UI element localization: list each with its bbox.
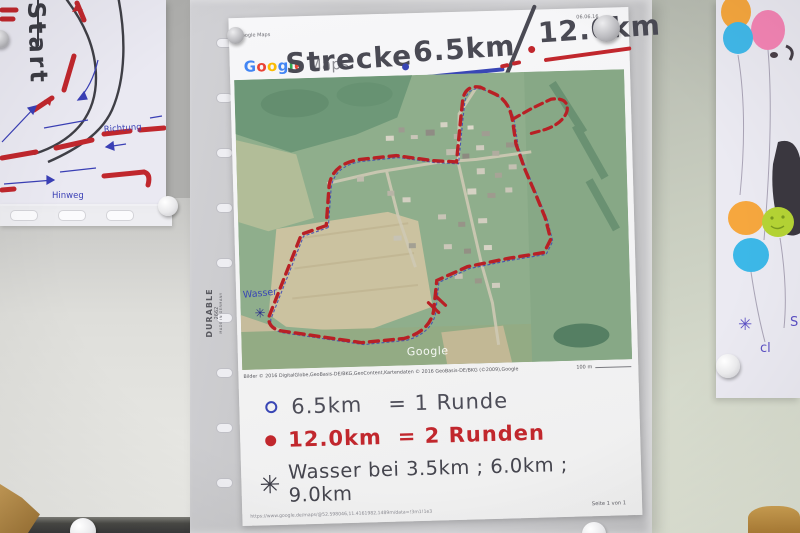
right-star-mark: ✳	[738, 315, 752, 335]
hinweg-label: Hinweg	[52, 191, 84, 201]
title-strecke: Strecke	[284, 39, 413, 80]
water-star-icon: ✳	[259, 469, 281, 499]
legend-dist-2: 12.0km	[288, 425, 382, 452]
left-sheet-protector-holes	[0, 204, 172, 226]
right-drawing-sheet: ✳ S cl	[716, 0, 800, 398]
blue-bullet-icon	[265, 401, 277, 413]
orange-balloon-mid	[728, 201, 764, 235]
map-attribution: Bilder © 2016 DigitalGlobe,GeoBasis-DE/B…	[243, 367, 518, 380]
push-pin	[227, 27, 244, 44]
legend-eq-1: = 1 Runde	[388, 389, 508, 416]
legend-row-2: 12.0km = 2 Runden	[262, 418, 623, 452]
route-legend: 6.5km = 1 Runde 12.0km = 2 Runden ✳ Wass…	[261, 385, 624, 516]
footer-page-number: Seite 1 von 1	[592, 500, 626, 507]
red-bullet-icon	[265, 435, 276, 446]
board-surface-left	[0, 198, 202, 533]
red-dot-icon	[528, 46, 535, 53]
left-drawing-sketch: Start	[0, 0, 166, 206]
wood-corner-right	[748, 506, 800, 533]
sheet-protector: DURABLE 2662 MADE IN GERMANY Google Maps…	[190, 0, 652, 533]
richtung-label: Richtung	[104, 122, 142, 135]
push-pin	[158, 196, 178, 216]
sleeve-brand-label: DURABLE 2662 MADE IN GERMANY	[206, 280, 224, 346]
title-distance-1: 6.5km	[412, 29, 516, 69]
dark-mark	[770, 52, 778, 58]
legend-row-1: 6.5km = 1 Runde	[261, 385, 622, 419]
blue-balloon-top	[723, 22, 753, 54]
pink-balloon	[751, 10, 785, 50]
sleeve-origin: MADE IN GERMANY	[220, 292, 224, 333]
map-wasser-star-icon: ✳	[254, 306, 265, 321]
legend-water-text: Wasser bei 3.5km ; 6.0km ; 9.0km	[288, 451, 624, 506]
balloons-drawing: ✳ S cl	[716, 0, 800, 398]
title-underline-red-dash	[512, 60, 522, 66]
bulletin-board-photo: Start	[0, 0, 800, 533]
left-drawing-sheet: Start	[0, 0, 166, 206]
push-pin	[593, 15, 620, 42]
legend-dist-1: 6.5km	[291, 393, 363, 419]
title-underline-red	[544, 46, 632, 62]
green-balloon-smiley	[762, 207, 794, 237]
legend-eq-2: = 2 Runden	[397, 421, 545, 449]
legend-row-3: ✳ Wasser bei 3.5km ; 6.0km ; 9.0km	[263, 451, 624, 507]
partial-dark-curve	[786, 46, 792, 60]
blue-balloon-mid	[733, 238, 769, 272]
map-scale-bar	[595, 366, 631, 368]
route-map-page: Google Maps 06.06.16 GoogleMaps Strecke …	[228, 7, 642, 526]
map-watermark: Google	[407, 344, 449, 358]
map-scale-label: 100 m	[576, 364, 592, 370]
push-pin	[716, 354, 740, 378]
right-partial-text-1: S	[790, 315, 798, 330]
right-partial-text-2: cl	[760, 341, 771, 356]
satellite-map: Wasser ✳ Google	[234, 69, 632, 370]
